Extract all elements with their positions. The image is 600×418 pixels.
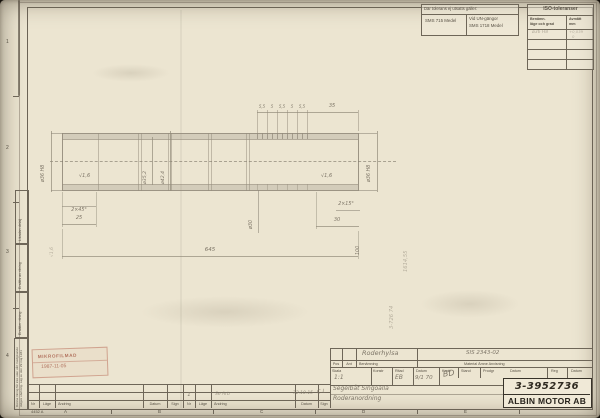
groove-notch — [272, 133, 273, 139]
rev-entry-nr: 1 — [184, 393, 194, 399]
tube-end-left — [62, 133, 63, 191]
row-line — [528, 39, 593, 40]
drawing-number: 3-3952736 — [504, 381, 590, 392]
groove-notch — [307, 133, 308, 139]
prodgr-header: Prodgr — [483, 369, 494, 373]
rev-lage-header: Läge — [195, 402, 211, 406]
zone-letter: E — [464, 410, 467, 415]
replaces-label: Ersätter ritning — [19, 295, 23, 335]
divider-line — [466, 14, 467, 35]
titleblock-vline — [413, 367, 414, 385]
dim-35: 35 — [317, 104, 347, 110]
rev-lage-header: Läge — [39, 402, 55, 406]
assembly-name: Roderanordning — [333, 396, 381, 403]
zone-tick — [111, 409, 112, 414]
reg-header: Reg — [551, 369, 558, 373]
groove-notch — [297, 133, 298, 139]
drawing-sheet: 1 2 3 4 Likadan detalj Ersätts av ritnin… — [0, 0, 600, 418]
konstr-header: Konstr — [373, 369, 384, 373]
revision-vline — [211, 384, 212, 408]
groove-notch — [287, 133, 288, 139]
row-line — [528, 59, 593, 60]
dim-line — [62, 256, 358, 257]
rev-andring-header: Ändring — [214, 402, 227, 406]
divider-line — [528, 15, 593, 16]
zone-tick — [315, 409, 316, 414]
titleblock-vline — [417, 348, 418, 367]
surface-finish-corner: √1,6 — [51, 235, 56, 257]
zone-number: 1 — [6, 40, 9, 46]
tube-joint-line — [141, 133, 142, 191]
thread-mark — [267, 184, 268, 190]
dim-ext — [316, 192, 317, 229]
titleblock-vline — [392, 367, 393, 385]
pencil-note: 1614,55 — [404, 224, 410, 272]
dim-ext — [51, 190, 62, 191]
titleblock-vline — [458, 367, 459, 378]
tube-outline — [62, 133, 358, 134]
part-name: Roderhylsa — [362, 350, 398, 357]
dim-ext — [358, 190, 377, 191]
groove-notch — [277, 133, 278, 139]
checked-signature: BD — [442, 369, 455, 379]
tolerance-general: SMS 715 Medel — [425, 19, 456, 24]
form-number: 4452 A — [31, 410, 43, 414]
same-part-label: Likadan detalj — [19, 193, 23, 241]
ant-header: Ant — [342, 362, 356, 366]
rev-nr-header: Nr — [183, 402, 195, 406]
thread-mark — [287, 184, 288, 190]
iso-entry-designation: ø36 H8 — [532, 31, 548, 36]
rev-sign-header: Sign — [318, 402, 330, 406]
tube-joint-line — [208, 133, 209, 191]
dim-ext — [51, 133, 62, 134]
stamp-line1: MIKROFILMAD — [38, 353, 77, 359]
groove-notch — [267, 133, 268, 139]
rev-datum-header: Datum — [295, 402, 318, 406]
dim-dia-right: ø36 H8 — [367, 144, 372, 182]
box-divider — [504, 394, 590, 395]
dim-groove: 5 — [287, 105, 297, 109]
tube-joint-line — [171, 133, 172, 191]
datum-header: Datum — [510, 369, 521, 373]
tube-joint-line — [138, 133, 139, 191]
tube-joint-line — [246, 133, 247, 191]
dim-groove: 5 — [267, 105, 277, 109]
titleblock-vline — [439, 367, 440, 385]
number-company-box: 3-3952736 ALBIN MOTOR AB — [503, 378, 592, 408]
zone-letter: A — [64, 410, 67, 415]
titleblock-vline — [356, 348, 357, 367]
dim-line — [62, 206, 96, 207]
zone-number: 4 — [6, 354, 9, 360]
dim-ext — [62, 229, 63, 259]
dim-line — [377, 131, 378, 192]
material-header: Material Ämne Anvisning — [464, 362, 505, 366]
replaces-box: Ersätter ritning — [15, 292, 29, 338]
dim-line — [170, 131, 171, 191]
tube-joint-line — [98, 133, 99, 191]
zone-number: 2 — [6, 146, 9, 152]
divider-line — [566, 15, 567, 69]
iso-col1-header2: läge och grad — [530, 22, 554, 26]
datum-header: Datum — [571, 369, 582, 373]
rev-entry-date: 72.10.15 — [293, 392, 313, 397]
legal-notice-text: Denna ritning får icke utan vårt medgiva… — [16, 341, 24, 407]
dim-line — [316, 226, 359, 227]
pencil-note: 3-726 74 — [390, 281, 396, 329]
tube-end-right — [358, 133, 359, 191]
groove-notch — [262, 133, 263, 139]
company-name: ALBIN MOTOR AB — [504, 397, 590, 406]
groove-notch — [302, 133, 303, 139]
dim-line — [62, 224, 96, 225]
replaced-by-label: Ersätts av ritning — [19, 247, 23, 289]
thread-mark — [277, 184, 278, 190]
dim-chamfer-left: 2×45° — [63, 208, 95, 213]
dim-25: 25 — [66, 216, 92, 222]
archive-stamp: MIKROFILMAD 1987-11-05 — [32, 347, 109, 379]
benamning-header: Benämning — [359, 362, 378, 366]
rev-andring-header: Ändring — [58, 402, 71, 406]
project-name: Segelbåt Singoalla — [333, 386, 389, 393]
zone-letter: B — [158, 410, 161, 415]
dim-line — [51, 131, 52, 192]
zone-tick — [13, 96, 19, 97]
dim-ext — [358, 110, 359, 131]
ritad-header: Ritad — [395, 369, 404, 373]
rev-sign-header: Sign — [167, 402, 183, 406]
groove-notch — [292, 133, 293, 139]
iso-entry-deviation-lower: 0 — [572, 35, 574, 39]
iso-col2-header2: mm — [569, 22, 576, 26]
surface-finish-right: √1,6 — [321, 174, 332, 180]
titleblock-vline — [547, 367, 548, 378]
center-line — [50, 161, 396, 162]
dim-100: 100 — [356, 231, 361, 255]
dim-bore: ø30 — [249, 201, 254, 229]
rev-entry-sign: C.L — [317, 388, 326, 395]
revision-line — [27, 384, 330, 385]
rev-datum-header: Datum — [143, 402, 167, 406]
rev-entry-change: Se Arb — [215, 393, 230, 398]
tube-joint-line — [211, 133, 212, 191]
zone-number: 3 — [6, 250, 9, 256]
zone-tick — [519, 409, 520, 414]
tolerance-un-1: Vid UN-gängor — [469, 17, 498, 22]
dim-line — [307, 112, 358, 113]
iso-col1-header: Benämn. — [530, 17, 546, 21]
dim-ext — [267, 110, 268, 133]
thread-mark — [307, 184, 308, 190]
pos-header: Pos — [330, 362, 342, 366]
stand-header: Stand — [461, 369, 471, 373]
iso-col2-header: Avmått — [569, 17, 581, 21]
tolerance-note-title: Där tolerans ej utsatts gäller: — [424, 7, 477, 12]
rev-nr-header: Nr — [27, 402, 39, 406]
dim-line — [336, 210, 360, 211]
dim-ext — [257, 110, 258, 133]
dim-line — [152, 137, 153, 185]
groove-notch — [257, 133, 258, 139]
same-part-box: Likadan detalj — [15, 190, 29, 244]
zone-tick — [417, 409, 418, 414]
skala-header: Skala — [332, 369, 341, 373]
zone-letter: C — [260, 410, 263, 415]
tolerance-note-box: Där tolerans ej utsatts gäller: SMS 715 … — [421, 4, 519, 36]
surface-finish-left: √1,6 — [79, 174, 90, 180]
dim-ext — [307, 110, 308, 133]
iso-tolerance-table: ISO-toleranser Benämn. läge och grad Avm… — [527, 4, 594, 70]
tube-outline — [62, 190, 358, 191]
dim-chamfer-right: 2×15° — [330, 202, 362, 207]
dim-ext — [62, 192, 63, 227]
titleblock-vline — [567, 367, 568, 378]
dim-ext — [96, 192, 97, 227]
dim-ext — [287, 110, 288, 133]
revision-vline — [55, 384, 56, 408]
date-value: 9/1 70 — [415, 375, 433, 381]
dim-ext — [297, 110, 298, 133]
drawn-by-value: EB — [395, 375, 403, 382]
zone-tick — [213, 409, 214, 414]
tube-outline — [62, 184, 358, 185]
replaced-by-box: Ersätts av ritning — [15, 244, 29, 292]
dim-line — [257, 112, 307, 113]
iso-table-title: ISO-toleranser — [528, 7, 593, 13]
dim-leader — [258, 190, 259, 233]
thread-mark — [297, 184, 298, 190]
revision-line — [27, 392, 330, 393]
tube-outline — [62, 139, 358, 140]
dim-groove: 5,5 — [257, 105, 267, 109]
divider-line — [422, 14, 518, 15]
dim-645: 645 — [195, 247, 225, 253]
dim-ext — [358, 133, 377, 134]
row-line — [528, 49, 593, 50]
dim-dia-left: ø36 H8 — [41, 144, 46, 182]
dim-dia-outer: ø42,4 — [161, 148, 166, 184]
groove-notch — [282, 133, 283, 139]
dim-groove: 5,5 — [277, 105, 287, 109]
scale-value: 1:1 — [334, 375, 344, 382]
tube-joint-line — [168, 133, 169, 191]
zone-letter: D — [362, 410, 365, 415]
dim-groove: 5,5 — [297, 105, 307, 109]
dim-dia-inner: ø35,2 — [143, 148, 148, 184]
datum-header: Datum — [416, 369, 427, 373]
stamp-line2: 1987-11-05 — [41, 364, 66, 370]
inner-border — [27, 7, 593, 410]
stamp-divider — [33, 360, 107, 364]
titleblock-vline — [480, 367, 481, 378]
dim-ext — [277, 110, 278, 133]
tolerance-un-2: SMS 1718 Medel — [469, 24, 503, 29]
titleblock-vline — [371, 367, 372, 385]
titleblock-left-edge — [330, 348, 331, 408]
tube-joint-line — [249, 133, 250, 191]
revision-line — [27, 400, 330, 401]
material-value: SIS 2343-02 — [466, 350, 499, 356]
dim-30: 30 — [325, 218, 349, 224]
